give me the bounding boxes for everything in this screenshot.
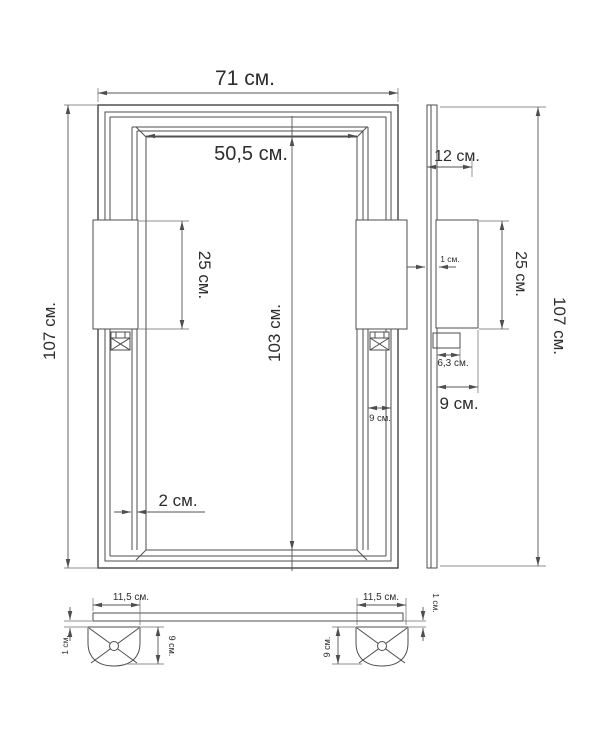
front-bracket-height-label: 25 см. (195, 251, 214, 300)
front-profile-gap-label: 2 см. (158, 491, 197, 510)
side-foot-depth-label: 9 см. (439, 394, 478, 413)
side-depth-label: 12 см. (434, 148, 480, 165)
dim-bottom-left-gap: 1 см. (60, 607, 70, 655)
side-bracket-height-label: 25 см. (512, 251, 529, 297)
side-view: 12 см. 1 см. 25 см. 6,3 см. 9 см. (427, 105, 569, 568)
technical-drawing-page: 71 см. 50,5 см. 107 см. 103 см. 25 см. (0, 0, 600, 750)
bottom-left-foot-height-label: 9 см. (167, 636, 177, 657)
bottom-right-foot (356, 627, 408, 666)
bottom-left-gap-label: 1 см. (60, 635, 70, 655)
front-opening-width-label: 50,5 см. (214, 143, 288, 165)
front-left-fastener (111, 332, 130, 350)
dim-side-height: 107 см. (440, 107, 569, 566)
bottom-left-foot-width-label: 11,5 см. (113, 592, 149, 603)
bottom-view: 11,5 см. 11,5 см. 1 см. 1 см. 9 см. (60, 592, 441, 666)
side-height-label: 107 см. (550, 297, 569, 355)
dim-side-depth: 12 см. (427, 148, 480, 177)
bottom-left-foot (88, 627, 140, 666)
front-right-bracket (356, 220, 407, 329)
front-right-fastener (370, 332, 389, 350)
front-height-label: 107 см. (40, 302, 59, 360)
dim-front-profile-gap: 2 см. (114, 491, 205, 512)
front-opening-height-label: 103 см. (265, 304, 284, 362)
front-left-bracket (93, 220, 138, 329)
dim-front-height: 107 см. (40, 105, 97, 568)
front-width-label: 71 см. (215, 67, 275, 90)
dim-bottom-right-foot-width: 11,5 см. (357, 592, 406, 625)
side-profile (427, 105, 478, 568)
bottom-bar (64, 613, 426, 627)
dim-side-bracket-height: 25 см. (479, 221, 529, 329)
dim-bottom-left-foot-width: 11,5 см. (93, 592, 149, 625)
bottom-right-foot-height-label: 9 см. (322, 637, 332, 658)
front-view: 71 см. 50,5 см. 107 см. 103 см. 25 см. (40, 67, 425, 571)
dim-front-width: 71 см. (98, 67, 398, 102)
bottom-right-foot-width-label: 11,5 см. (363, 592, 399, 603)
dim-front-opening-width: 50,5 см. (146, 136, 357, 165)
front-column-width-label: 9 см. (369, 413, 391, 424)
bottom-right-gap-label: 1 см. (431, 593, 441, 613)
dim-front-column-width: 9 см. (368, 408, 391, 424)
dim-front-bracket-height: 25 см. (139, 221, 214, 329)
mirror-frame-drawing: 71 см. 50,5 см. 107 см. 103 см. 25 см. (0, 0, 600, 750)
dim-front-opening-height: 103 см. (265, 116, 292, 571)
side-gap-label: 1 см. (440, 254, 460, 264)
dim-side-bracket-depth: 6,3 см. (437, 349, 469, 369)
dim-side-foot-depth: 9 см. (437, 330, 479, 413)
front-frame-outline (98, 105, 398, 568)
side-bracket-depth-label: 6,3 см. (437, 358, 468, 369)
dim-bottom-right-gap: 1 см. (423, 593, 441, 641)
